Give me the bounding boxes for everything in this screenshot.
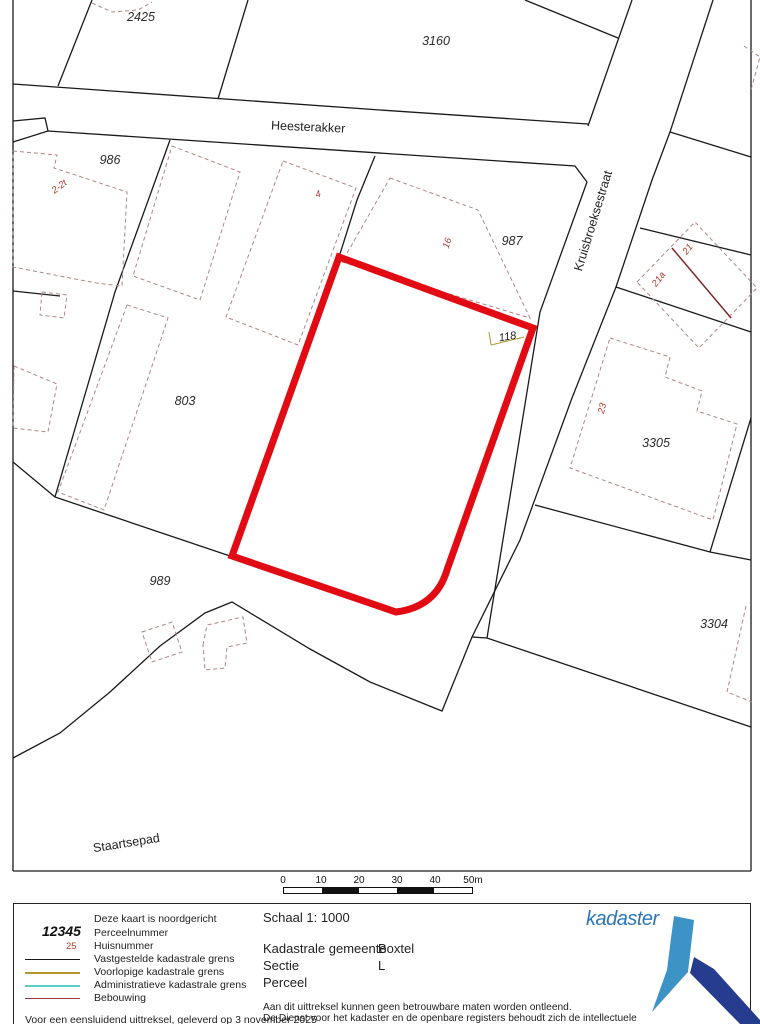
house-number: 4 xyxy=(314,189,323,201)
house-number: 21 xyxy=(680,242,696,258)
scale-tick-label: 20 xyxy=(353,875,364,886)
field-value-kadastrale-gemeente: Boxtel xyxy=(378,941,414,956)
north-orientation-note: Deze kaart is noordgericht xyxy=(94,913,217,925)
scale-segment xyxy=(322,888,360,893)
house-number: 2-2t xyxy=(49,177,70,196)
disclaimer-line: De Dienst voor het kadaster en de openba… xyxy=(263,1013,637,1024)
scale-text: Schaal 1: 1000 xyxy=(263,910,350,925)
legend-line-administratief xyxy=(25,985,80,987)
cadastral-extract-page: 2425 3160 986 987 803 989 3305 3304 Hees… xyxy=(0,0,760,1024)
field-value-sectie: L xyxy=(378,958,385,973)
legend-label: Administratieve kadastrale grens xyxy=(94,979,246,991)
logo-dark-blue-shape xyxy=(690,957,760,1024)
parcel-label: 803 xyxy=(175,394,196,408)
parcel-label: 3305 xyxy=(642,436,670,450)
street-label-staartsepad: Staartsepad xyxy=(92,831,161,855)
scale-tick-label: 50m xyxy=(463,875,482,886)
parcel-label: 986 xyxy=(100,153,121,167)
house-number: 23 xyxy=(596,401,610,416)
street-label-kruisbroeksestraat: Kruisbroeksestraat xyxy=(571,168,615,272)
legend-label: Bebouwing xyxy=(94,992,146,1004)
building-outlines xyxy=(13,2,760,702)
road-heesterakker-north-edge xyxy=(13,84,588,124)
parcel-label: 989 xyxy=(150,574,171,588)
scale-segment xyxy=(397,888,435,893)
scale-bar: 0 10 20 30 40 50m xyxy=(283,875,473,896)
parcel-label: 987 xyxy=(502,234,524,248)
field-label-kadastrale-gemeente: Kadastrale gemeente xyxy=(263,941,387,956)
map-frame xyxy=(13,0,751,871)
scale-tick-label: 40 xyxy=(429,875,440,886)
scale-segment xyxy=(284,888,322,893)
legend-label: Perceelnummer xyxy=(94,927,168,939)
legend-line-bebouwing xyxy=(25,998,80,999)
legend-symbol-huisnummer: 25 xyxy=(66,941,77,952)
scale-tick-label: 10 xyxy=(315,875,326,886)
highlighted-parcel-number: 118 xyxy=(498,330,518,345)
logo-light-blue-shape xyxy=(652,916,694,1012)
road-kruisbroeksestraat-east-edge xyxy=(472,132,751,727)
house-number: 16 xyxy=(441,236,455,250)
legend-line-voorlopig xyxy=(25,972,80,974)
parcel-label: 2425 xyxy=(126,10,155,24)
building-party-wall xyxy=(672,248,731,318)
disclaimer-line: Aan dit uittreksel kunnen geen betrouwba… xyxy=(263,1002,572,1013)
field-label-sectie: Sectie xyxy=(263,958,299,973)
scale-segment xyxy=(434,888,472,893)
legend-label: Vastgestelde kadastrale grens xyxy=(94,953,234,965)
street-label-heesterakker: Heesterakker xyxy=(271,118,346,135)
scale-segment xyxy=(359,888,397,893)
road-staartsepad-edge xyxy=(13,602,472,758)
scale-bar-segments xyxy=(283,887,473,894)
legend-label: Voorlopige kadastrale grens xyxy=(94,966,224,978)
highlighted-parcel-boundary xyxy=(232,257,533,612)
parcel-label: 3160 xyxy=(422,34,450,48)
field-label-perceel: Perceel xyxy=(263,975,307,990)
scale-tick-label: 0 xyxy=(280,875,286,886)
legend-symbol-perceelnummer: 12345 xyxy=(42,923,81,939)
house-number: 21a xyxy=(649,270,668,290)
cadastral-boundaries xyxy=(13,0,751,871)
legend-label: Huisnummer xyxy=(94,940,154,952)
parcel-label: 3304 xyxy=(700,617,728,631)
legend-line-vastgesteld xyxy=(25,959,80,960)
scale-tick-label: 30 xyxy=(391,875,402,886)
kadaster-logo-mark xyxy=(640,903,760,1024)
cadastral-map: 2425 3160 986 987 803 989 3305 3304 Hees… xyxy=(0,0,760,872)
